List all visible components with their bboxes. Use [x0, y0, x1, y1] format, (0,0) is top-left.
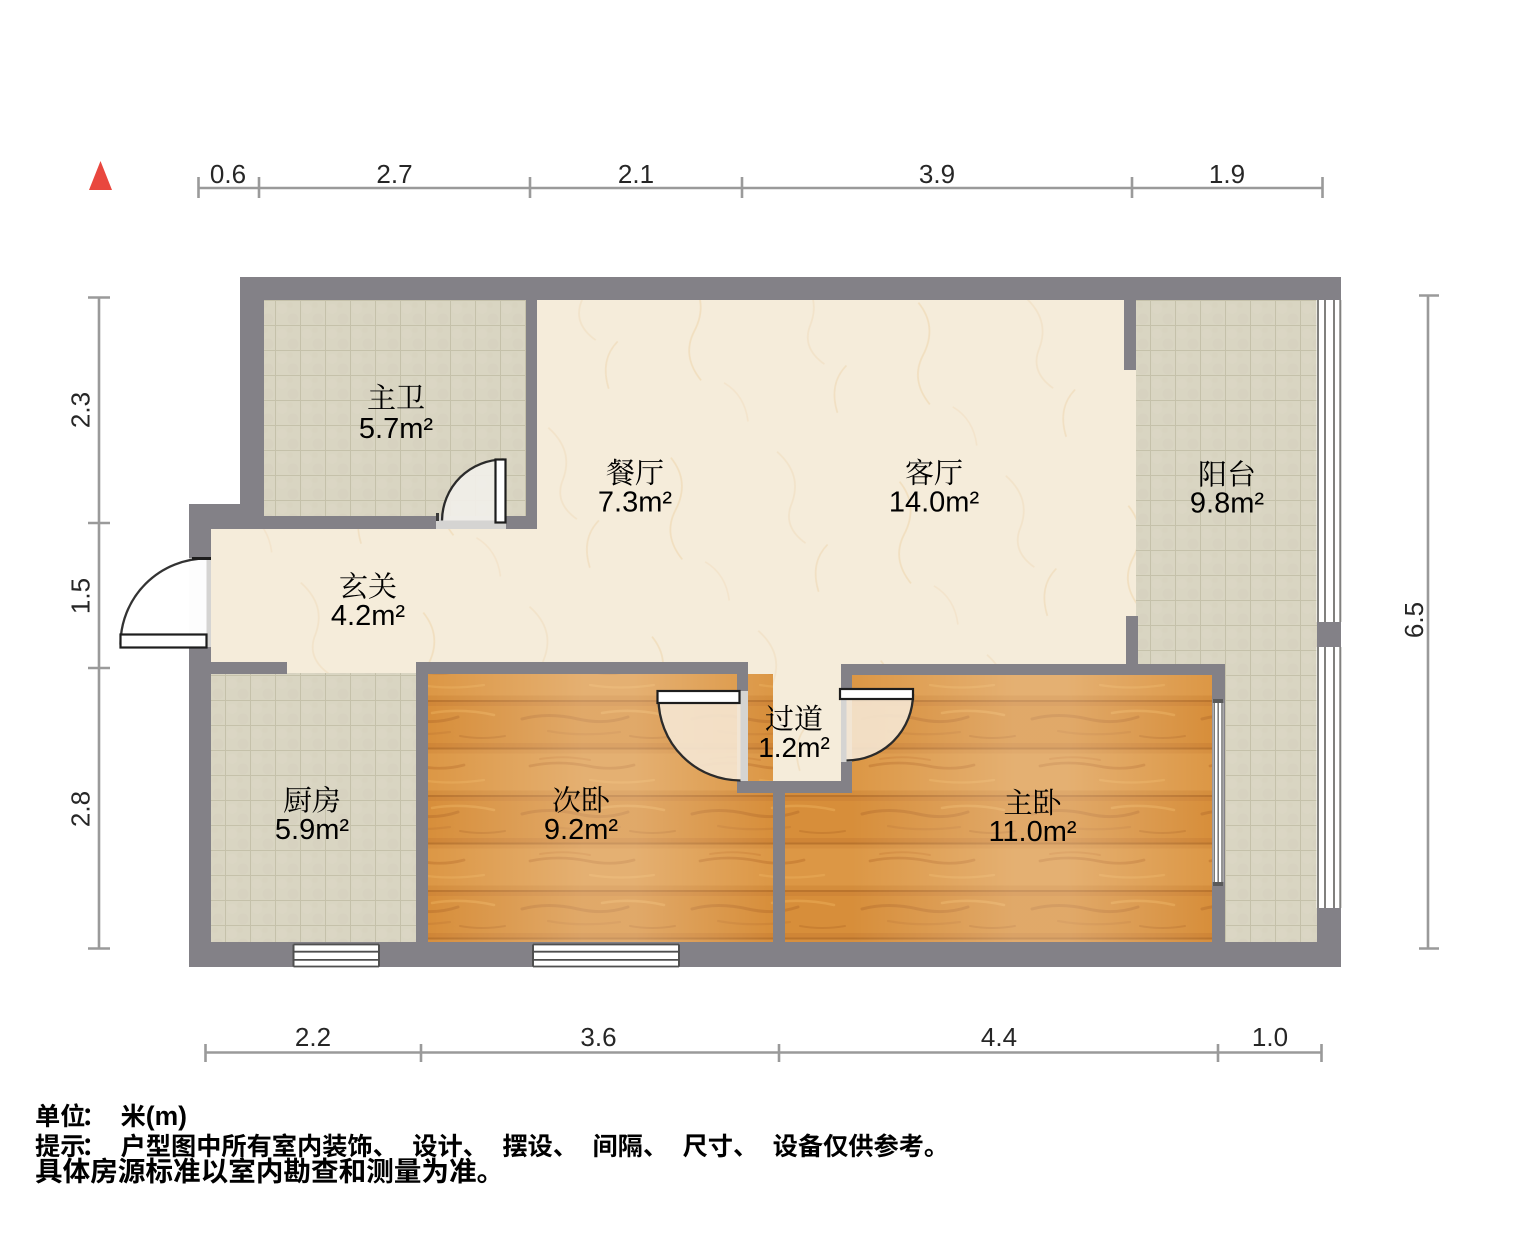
svg-text:2.7: 2.7	[376, 159, 412, 189]
svg-text:2.2: 2.2	[295, 1022, 331, 1052]
svg-text:3.6: 3.6	[580, 1022, 616, 1052]
svg-text:5.7m²: 5.7m²	[359, 413, 433, 445]
svg-text:7.3m²: 7.3m²	[598, 487, 672, 519]
svg-text:2.1: 2.1	[618, 159, 654, 189]
svg-text:1.9: 1.9	[1209, 159, 1245, 189]
svg-text:9.8m²: 9.8m²	[1190, 488, 1264, 520]
svg-text:1.2m²: 1.2m²	[758, 732, 830, 763]
svg-text:9.2m²: 9.2m²	[544, 814, 618, 846]
svg-text:1.0: 1.0	[1252, 1022, 1288, 1052]
svg-text:2.8: 2.8	[66, 791, 96, 827]
svg-text:4.2m²: 4.2m²	[331, 600, 405, 632]
svg-text:1.5: 1.5	[66, 578, 96, 614]
svg-text:5.9m²: 5.9m²	[275, 814, 349, 846]
svg-text:11.0m²: 11.0m²	[988, 816, 1076, 848]
svg-text:14.0m²: 14.0m²	[889, 487, 980, 519]
svg-text:4.4: 4.4	[981, 1022, 1017, 1052]
svg-text:2.3: 2.3	[66, 392, 96, 428]
svg-text:6.5: 6.5	[1399, 602, 1429, 638]
svg-text:0.6: 0.6	[210, 159, 246, 189]
svg-text:3.9: 3.9	[919, 159, 955, 189]
svg-text:(m): (m)	[146, 1101, 187, 1131]
